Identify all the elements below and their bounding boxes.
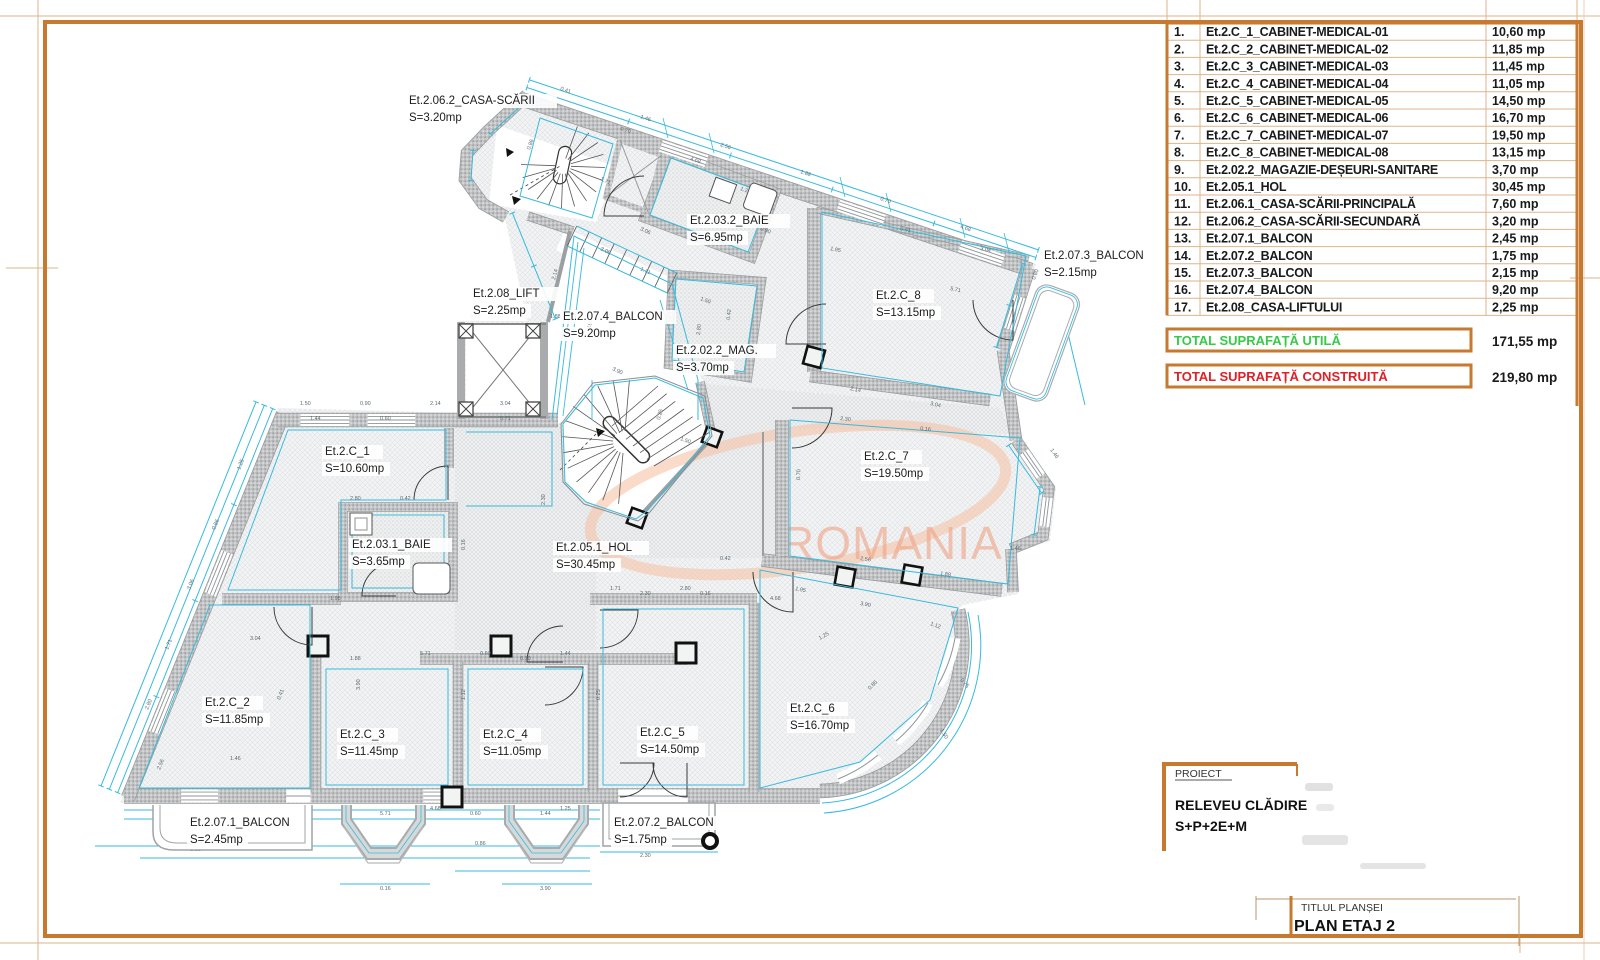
- svg-text:Et.2.C_5: Et.2.C_5: [640, 727, 685, 739]
- svg-text:3.04: 3.04: [500, 401, 511, 407]
- svg-text:PROIECT: PROIECT: [1175, 768, 1222, 780]
- svg-text:0.25: 0.25: [596, 689, 602, 700]
- svg-text:0.90: 0.90: [360, 401, 371, 407]
- svg-text:1.88: 1.88: [550, 314, 561, 320]
- svg-text:4.68: 4.68: [430, 806, 441, 812]
- svg-text:Et.2.06.1_CASA-SCĂRII-PRINCIPA: Et.2.06.1_CASA-SCĂRII-PRINCIPALĂ: [1206, 196, 1416, 211]
- svg-text:Et.2.C_4_CABINET-MEDICAL-04: Et.2.C_4_CABINET-MEDICAL-04: [1206, 77, 1389, 91]
- svg-text:2.80: 2.80: [350, 496, 361, 502]
- svg-text:1.12: 1.12: [461, 689, 467, 700]
- svg-text:0.16: 0.16: [461, 539, 467, 550]
- svg-text:Et.2.C_6_CABINET-MEDICAL-06: Et.2.C_6_CABINET-MEDICAL-06: [1206, 111, 1389, 125]
- svg-text:0.42: 0.42: [400, 496, 411, 502]
- svg-text:S=3.65mp: S=3.65mp: [352, 556, 405, 568]
- svg-text:Et.2.05.1_HOL: Et.2.05.1_HOL: [556, 542, 633, 554]
- svg-text:16,70 mp: 16,70 mp: [1492, 111, 1546, 125]
- svg-text:14.: 14.: [1174, 249, 1191, 263]
- svg-text:5.: 5.: [1174, 94, 1184, 108]
- svg-text:2.80: 2.80: [680, 586, 691, 592]
- svg-text:Et.2.07.4_BALCON: Et.2.07.4_BALCON: [1206, 283, 1313, 297]
- svg-text:S+P+2E+M: S+P+2E+M: [1175, 818, 1247, 834]
- svg-text:Et.2.05.1_HOL: Et.2.05.1_HOL: [1206, 180, 1287, 194]
- svg-text:171,55 mp: 171,55 mp: [1492, 334, 1557, 349]
- svg-text:1.44: 1.44: [560, 651, 571, 657]
- svg-text:S=16.70mp: S=16.70mp: [790, 720, 849, 732]
- svg-text:Et.2.07.2_BALCON: Et.2.07.2_BALCON: [614, 817, 714, 829]
- svg-text:S=9.20mp: S=9.20mp: [563, 328, 616, 340]
- svg-text:TOTAL SUPRAFAȚĂ UTILĂ: TOTAL SUPRAFAȚĂ UTILĂ: [1174, 333, 1341, 348]
- svg-text:S=13.15mp: S=13.15mp: [876, 307, 935, 319]
- svg-text:6.: 6.: [1174, 111, 1184, 125]
- svg-text:0.16: 0.16: [380, 886, 391, 892]
- svg-text:Et.2.02.2_MAGAZIE-DEȘEURI-SANI: Et.2.02.2_MAGAZIE-DEȘEURI-SANITARE: [1206, 163, 1438, 177]
- svg-text:Et.2.07.1_BALCON: Et.2.07.1_BALCON: [190, 817, 290, 829]
- svg-text:S=6.95mp: S=6.95mp: [690, 232, 743, 244]
- svg-text:Et.2.C_1: Et.2.C_1: [325, 446, 370, 458]
- svg-text:Et.2.07.3_BALCON: Et.2.07.3_BALCON: [1206, 266, 1313, 280]
- svg-text:0.42: 0.42: [726, 309, 733, 320]
- svg-text:4.: 4.: [1174, 77, 1184, 91]
- svg-text:S=3.20mp: S=3.20mp: [409, 112, 462, 124]
- svg-text:PLAN ETAJ 2: PLAN ETAJ 2: [1294, 918, 1395, 935]
- svg-text:Et.2.C_7_CABINET-MEDICAL-07: Et.2.C_7_CABINET-MEDICAL-07: [1206, 128, 1389, 142]
- svg-text:1.46: 1.46: [230, 756, 241, 762]
- svg-text:2.30: 2.30: [640, 591, 651, 597]
- svg-text:0.70: 0.70: [520, 656, 531, 662]
- svg-text:S=2.25mp: S=2.25mp: [473, 305, 526, 317]
- svg-text:2.: 2.: [1174, 42, 1184, 56]
- svg-text:14,50 mp: 14,50 mp: [1492, 94, 1546, 108]
- svg-text:TOTAL SUPRAFAȚĂ CONSTRUITĂ: TOTAL SUPRAFAȚĂ CONSTRUITĂ: [1174, 369, 1388, 384]
- svg-text:2.30: 2.30: [541, 494, 547, 505]
- svg-text:S=14.50mp: S=14.50mp: [640, 744, 699, 756]
- svg-text:3.90: 3.90: [356, 679, 362, 690]
- svg-text:Et.2.C_6: Et.2.C_6: [790, 703, 835, 715]
- svg-text:9,20 mp: 9,20 mp: [1492, 283, 1539, 297]
- svg-text:11.: 11.: [1174, 197, 1191, 211]
- svg-text:30,45 mp: 30,45 mp: [1492, 180, 1546, 194]
- svg-text:1.25: 1.25: [560, 806, 571, 812]
- svg-text:0.16: 0.16: [700, 591, 711, 597]
- svg-text:Et.2.08_CASA-LIFTULUI: Et.2.08_CASA-LIFTULUI: [1206, 300, 1342, 314]
- svg-text:3,20 mp: 3,20 mp: [1492, 214, 1539, 228]
- svg-text:S=2.15mp: S=2.15mp: [1044, 267, 1097, 279]
- svg-text:10,60 mp: 10,60 mp: [1492, 25, 1546, 39]
- svg-text:1.95: 1.95: [330, 596, 341, 602]
- svg-text:Et.2.03.1_BAIE: Et.2.03.1_BAIE: [352, 539, 431, 551]
- svg-text:Et.2.02.2_MAG.: Et.2.02.2_MAG.: [676, 345, 758, 357]
- svg-text:1.44: 1.44: [540, 811, 551, 817]
- svg-text:219,80 mp: 219,80 mp: [1492, 370, 1557, 385]
- svg-text:13.: 13.: [1174, 232, 1191, 246]
- svg-text:1.88: 1.88: [350, 656, 361, 662]
- svg-text:Et.2.C_2_CABINET-MEDICAL-02: Et.2.C_2_CABINET-MEDICAL-02: [1206, 42, 1389, 56]
- svg-text:Et.2.06.2_CASA-SCĂRII: Et.2.06.2_CASA-SCĂRII: [409, 94, 535, 107]
- svg-text:S=30.45mp: S=30.45mp: [556, 559, 615, 571]
- svg-text:TITLUL PLANȘEI: TITLUL PLANȘEI: [1301, 902, 1383, 914]
- svg-text:1,75 mp: 1,75 mp: [1492, 249, 1539, 263]
- svg-text:Et.2.C_1_CABINET-MEDICAL-01: Et.2.C_1_CABINET-MEDICAL-01: [1206, 25, 1389, 39]
- svg-text:10.: 10.: [1174, 180, 1191, 194]
- svg-text:1.50: 1.50: [300, 401, 311, 407]
- svg-text:17.: 17.: [1174, 300, 1191, 314]
- svg-text:5.71: 5.71: [500, 416, 511, 422]
- svg-text:13,15 mp: 13,15 mp: [1492, 146, 1546, 160]
- svg-text:7.: 7.: [1174, 128, 1184, 142]
- svg-text:3.90: 3.90: [540, 886, 551, 892]
- svg-text:Et.2.C_8: Et.2.C_8: [876, 290, 921, 302]
- svg-text:0.86: 0.86: [475, 841, 486, 847]
- svg-text:3.: 3.: [1174, 60, 1184, 74]
- svg-text:9.: 9.: [1174, 163, 1184, 177]
- svg-text:3,70 mp: 3,70 mp: [1492, 163, 1539, 177]
- svg-text:S=11.05mp: S=11.05mp: [483, 746, 541, 758]
- svg-text:0.60: 0.60: [470, 811, 481, 817]
- svg-text:Et.2.03.2_BAIE: Et.2.03.2_BAIE: [690, 215, 769, 227]
- svg-text:Et.2.07.1_BALCON: Et.2.07.1_BALCON: [1206, 232, 1313, 246]
- svg-text:Et.2.C_3: Et.2.C_3: [340, 729, 385, 741]
- svg-text:12.: 12.: [1174, 214, 1191, 228]
- svg-text:3.04: 3.04: [250, 636, 261, 642]
- svg-text:4.68: 4.68: [770, 596, 781, 602]
- svg-text:1.44: 1.44: [310, 416, 321, 422]
- svg-text:Et.2.C_2: Et.2.C_2: [205, 697, 250, 709]
- svg-text:RELEVEU CLĂDIRE: RELEVEU CLĂDIRE: [1175, 797, 1307, 813]
- svg-text:11,45 mp: 11,45 mp: [1492, 60, 1545, 74]
- svg-text:S=2.45mp: S=2.45mp: [190, 834, 243, 846]
- svg-text:11,05 mp: 11,05 mp: [1492, 77, 1545, 91]
- svg-text:2.14: 2.14: [430, 401, 441, 407]
- svg-text:16.: 16.: [1174, 283, 1191, 297]
- svg-text:15.: 15.: [1174, 266, 1191, 280]
- svg-text:11,85 mp: 11,85 mp: [1492, 42, 1545, 56]
- svg-text:S=10.60mp: S=10.60mp: [325, 463, 384, 475]
- svg-text:5.71: 5.71: [380, 811, 391, 817]
- svg-text:19,50 mp: 19,50 mp: [1492, 128, 1546, 142]
- svg-text:0.42: 0.42: [720, 556, 731, 562]
- svg-text:S=19.50mp: S=19.50mp: [864, 468, 923, 480]
- svg-text:Et.2.C_8_CABINET-MEDICAL-08: Et.2.C_8_CABINET-MEDICAL-08: [1206, 146, 1389, 160]
- svg-text:S=1.75mp: S=1.75mp: [614, 834, 667, 846]
- svg-text:1.71: 1.71: [610, 586, 621, 592]
- svg-text:0.70: 0.70: [796, 469, 802, 480]
- svg-text:S=11.85mp: S=11.85mp: [205, 714, 263, 726]
- svg-text:Et.2.06.2_CASA-SCĂRII-SECUNDAR: Et.2.06.2_CASA-SCĂRII-SECUNDARĂ: [1206, 213, 1421, 228]
- svg-text:2,15 mp: 2,15 mp: [1492, 266, 1539, 280]
- svg-text:Et.2.07.3_BALCON: Et.2.07.3_BALCON: [1044, 250, 1144, 262]
- svg-text:Et.2.07.2_BALCON: Et.2.07.2_BALCON: [1206, 249, 1313, 263]
- svg-text:Et.2.08_LIFT: Et.2.08_LIFT: [473, 288, 539, 300]
- svg-text:0.60: 0.60: [380, 416, 391, 422]
- svg-text:2,25 mp: 2,25 mp: [1492, 300, 1539, 314]
- svg-text:5.71: 5.71: [420, 651, 431, 657]
- svg-text:1.: 1.: [1174, 25, 1184, 39]
- svg-text:2.30: 2.30: [640, 853, 651, 859]
- svg-text:S=3.70mp: S=3.70mp: [676, 362, 729, 374]
- svg-text:0.60: 0.60: [480, 651, 491, 657]
- svg-text:2,45 mp: 2,45 mp: [1492, 232, 1539, 246]
- svg-text:8.: 8.: [1174, 146, 1184, 160]
- svg-text:Et.2.C_4: Et.2.C_4: [483, 729, 528, 741]
- svg-text:Et.2.07.4_BALCON: Et.2.07.4_BALCON: [563, 311, 663, 323]
- svg-text:Et.2.C_3_CABINET-MEDICAL-03: Et.2.C_3_CABINET-MEDICAL-03: [1206, 60, 1389, 74]
- svg-text:Et.2.C_5_CABINET-MEDICAL-05: Et.2.C_5_CABINET-MEDICAL-05: [1206, 94, 1389, 108]
- svg-text:S=11.45mp: S=11.45mp: [340, 746, 398, 758]
- svg-text:2.80: 2.80: [696, 324, 703, 335]
- svg-text:7,60 mp: 7,60 mp: [1492, 197, 1539, 211]
- svg-text:1.46: 1.46: [1010, 546, 1021, 552]
- svg-text:Et.2.C_7: Et.2.C_7: [864, 451, 909, 463]
